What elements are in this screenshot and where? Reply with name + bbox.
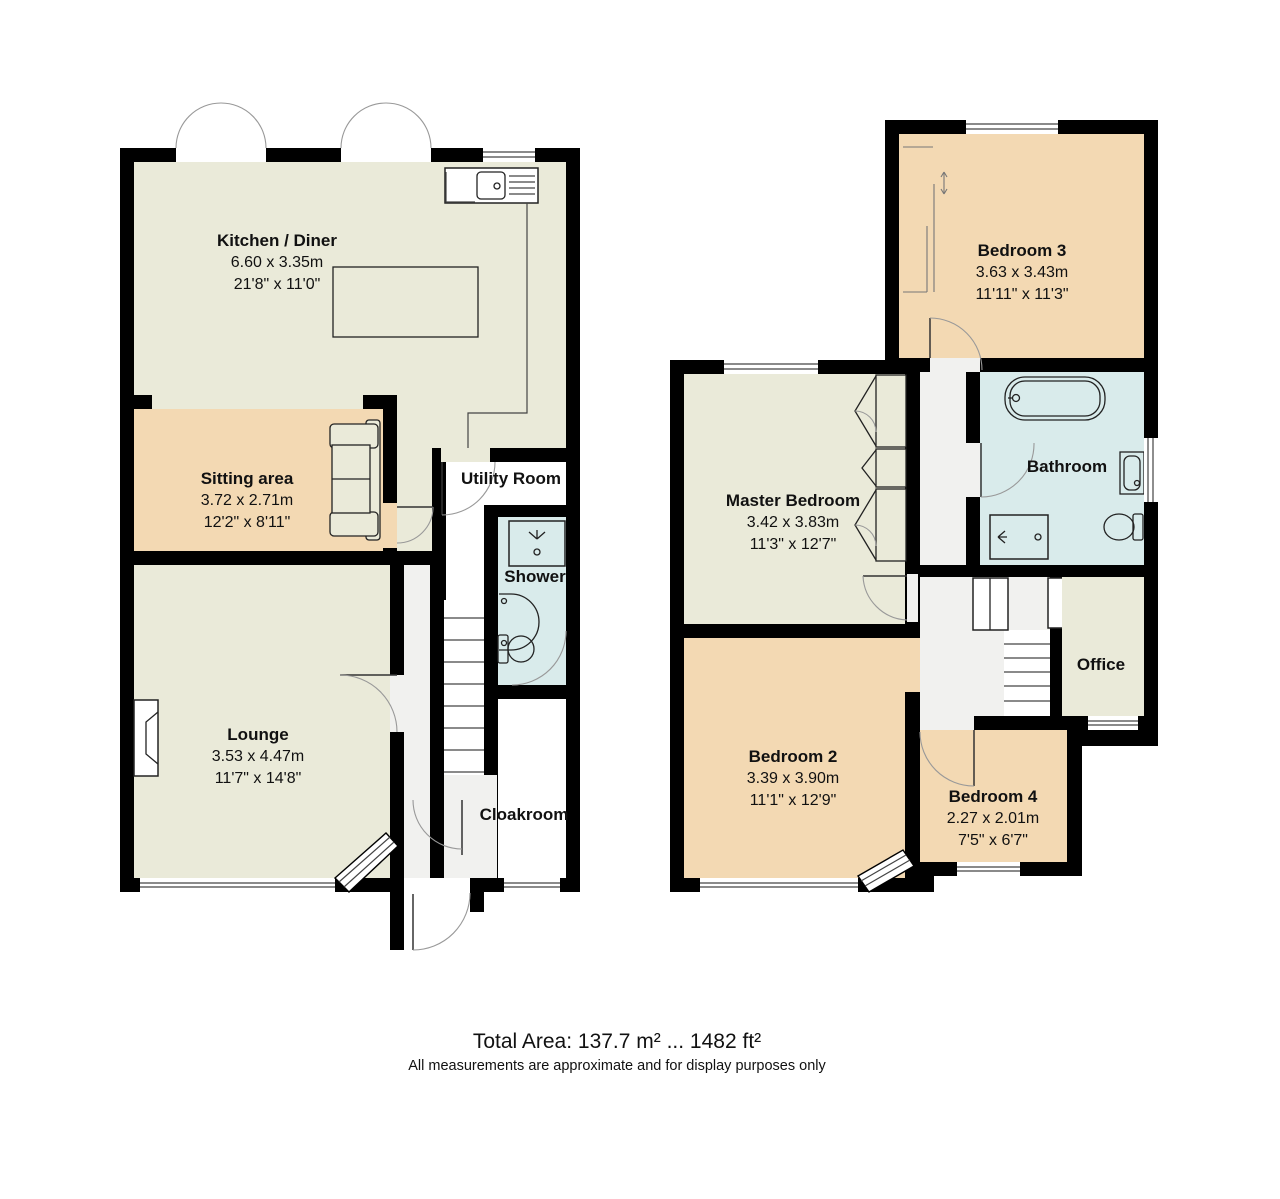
room-size-m: 3.39 x 3.90m [747,768,840,790]
room-label-shower: Shower [504,566,565,588]
room-label-master-bedroom: Master Bedroom 3.42 x 3.83m 11'3" x 12'7… [726,490,860,556]
fireplace-icon [134,700,158,776]
total-area-text: Total Area: 137.7 m² ... 1482 ft² [317,1030,917,1054]
sofa-icon [330,420,380,540]
room-size-ft: 11'3" x 12'7" [726,534,860,556]
room-size-ft: 11'11" x 11'3" [975,284,1068,306]
floorplan-graphics [0,0,1280,1199]
room-size-ft: 12'2" x 8'11" [201,512,294,534]
room-size-ft: 21'8" x 11'0" [217,274,337,296]
room-label-bedroom-4: Bedroom 4 2.27 x 2.01m 7'5" x 6'7" [947,786,1040,852]
room-size-m: 3.42 x 3.83m [726,512,860,534]
room-label-bedroom-3: Bedroom 3 3.63 x 3.43m 11'11" x 11'3" [975,240,1068,306]
master-window-icon [724,360,818,374]
room-label-utility-room: Utility Room [461,468,561,490]
disclaimer-text: All measurements are approximate and for… [257,1058,977,1074]
room-size-ft: 7'5" x 6'7" [947,830,1040,852]
room-label-bedroom-2: Bedroom 2 3.39 x 3.90m 11'1" x 12'9" [747,746,840,812]
room-label-bathroom: Bathroom [1027,456,1107,478]
room-label-cloakroom: Cloakroom [480,804,569,826]
bathroom-shower-icon [990,515,1048,559]
room-label-kitchen-diner: Kitchen / Diner 6.60 x 3.35m 21'8" x 11'… [217,230,337,296]
shower-cubicle-icon [509,521,565,566]
cloakroom-window-icon [504,878,560,892]
room-name: Bathroom [1027,456,1107,478]
room-name: Bedroom 2 [747,746,840,768]
stairs-ground-icon [444,600,484,775]
room-name: Utility Room [461,468,561,490]
french-doors-icon [176,103,431,148]
room-size-m: 3.72 x 2.71m [201,490,294,512]
bedroom4-window-icon [957,862,1020,876]
room-name: Cloakroom [480,804,569,826]
room-size-m: 3.63 x 3.43m [975,262,1068,284]
room-name: Office [1077,654,1125,676]
room-size-ft: 11'1" x 12'9" [747,790,840,812]
bathroom-window-icon [1144,438,1158,502]
room-size-m: 3.53 x 4.47m [212,746,305,768]
room-label-office: Office [1077,654,1125,676]
room-name: Kitchen / Diner [217,230,337,252]
room-name: Shower [504,566,565,588]
room-size-m: 2.27 x 2.01m [947,808,1040,830]
floorplan-page: Kitchen / Diner 6.60 x 3.35m 21'8" x 11'… [0,0,1280,1199]
front-door-icon [390,878,484,950]
kitchen-window-icon [483,148,535,162]
room-name: Bedroom 3 [975,240,1068,262]
room-size-m: 6.60 x 3.35m [217,252,337,274]
room-name: Sitting area [201,468,294,490]
bedroom3-window-icon [966,120,1058,134]
room-name: Lounge [212,724,305,746]
room-label-sitting-area: Sitting area 3.72 x 2.71m 12'2" x 8'11" [201,468,294,534]
office-window-icon [1088,716,1138,730]
room-label-lounge: Lounge 3.53 x 4.47m 11'7" x 14'8" [212,724,305,790]
room-size-ft: 11'7" x 14'8" [212,768,305,790]
kitchen-sink-icon [445,168,538,203]
room-name: Bedroom 4 [947,786,1040,808]
room-name: Master Bedroom [726,490,860,512]
